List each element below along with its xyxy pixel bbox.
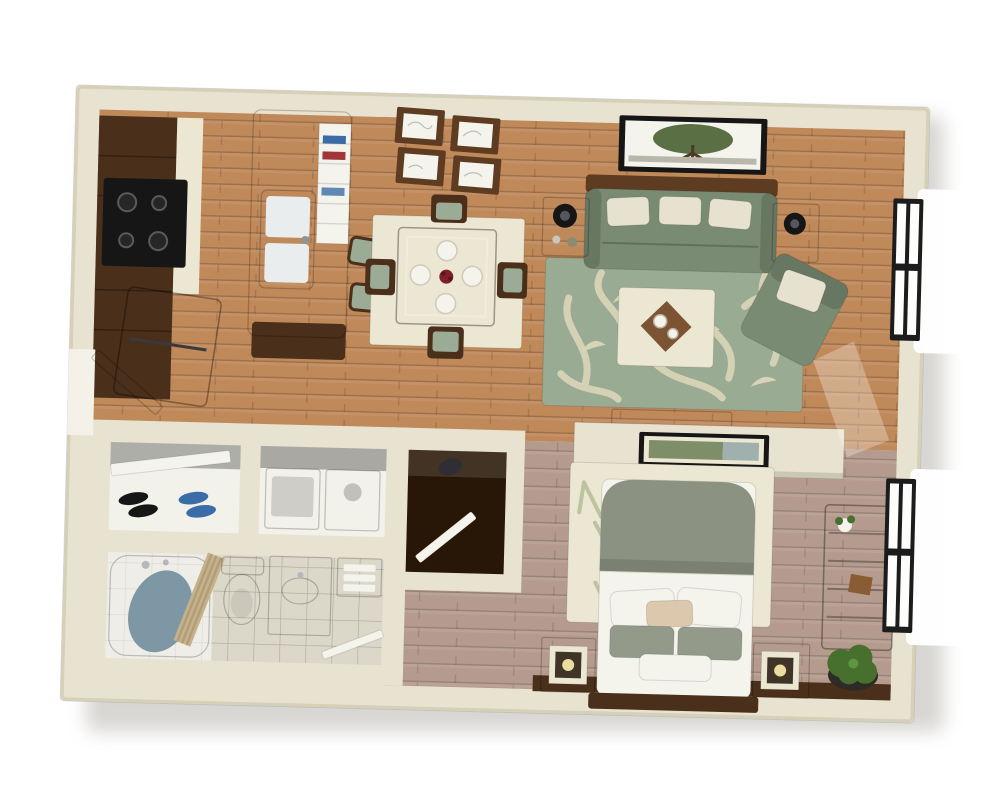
framed-print xyxy=(394,107,445,147)
bed-pillow-sage xyxy=(609,625,674,659)
island-shelf xyxy=(316,123,351,244)
island-base xyxy=(251,322,346,360)
living-window xyxy=(889,188,993,355)
laundry-shade xyxy=(260,446,387,471)
framed-print xyxy=(395,147,446,187)
coffee-table xyxy=(617,287,715,367)
towel xyxy=(344,564,376,572)
sofa-pillow xyxy=(659,196,702,225)
divider-framed-art xyxy=(638,432,769,469)
stove-burner xyxy=(118,193,136,211)
decor-box xyxy=(848,574,873,595)
stove xyxy=(101,178,187,268)
sofa-pillow xyxy=(606,197,649,227)
apartment xyxy=(60,85,996,725)
entry-opening xyxy=(67,349,95,436)
window-glow xyxy=(913,189,993,355)
dining-chair xyxy=(365,259,396,296)
sofa xyxy=(584,174,778,273)
utility-block xyxy=(85,419,410,685)
bed xyxy=(588,479,764,713)
walk-in-closet xyxy=(387,427,525,592)
dining-chair xyxy=(497,262,528,299)
floorplan-render xyxy=(0,0,1000,800)
shelf-item-red xyxy=(322,151,345,160)
tree-framed-art xyxy=(618,115,767,175)
bed-pillow-tan xyxy=(646,600,693,627)
cup xyxy=(654,315,667,328)
dining-area xyxy=(363,193,529,361)
cup xyxy=(668,329,678,339)
shelf-item-blue xyxy=(323,135,346,144)
sofa-pillow xyxy=(708,198,752,230)
window-glow xyxy=(906,469,987,647)
framed-print xyxy=(450,115,501,155)
bedroom-window xyxy=(882,468,987,647)
framed-print xyxy=(451,155,502,195)
bed-pillow-roll xyxy=(639,654,712,682)
washer-door xyxy=(271,476,314,517)
dining-chair xyxy=(427,326,464,359)
dining-chair xyxy=(431,194,468,223)
